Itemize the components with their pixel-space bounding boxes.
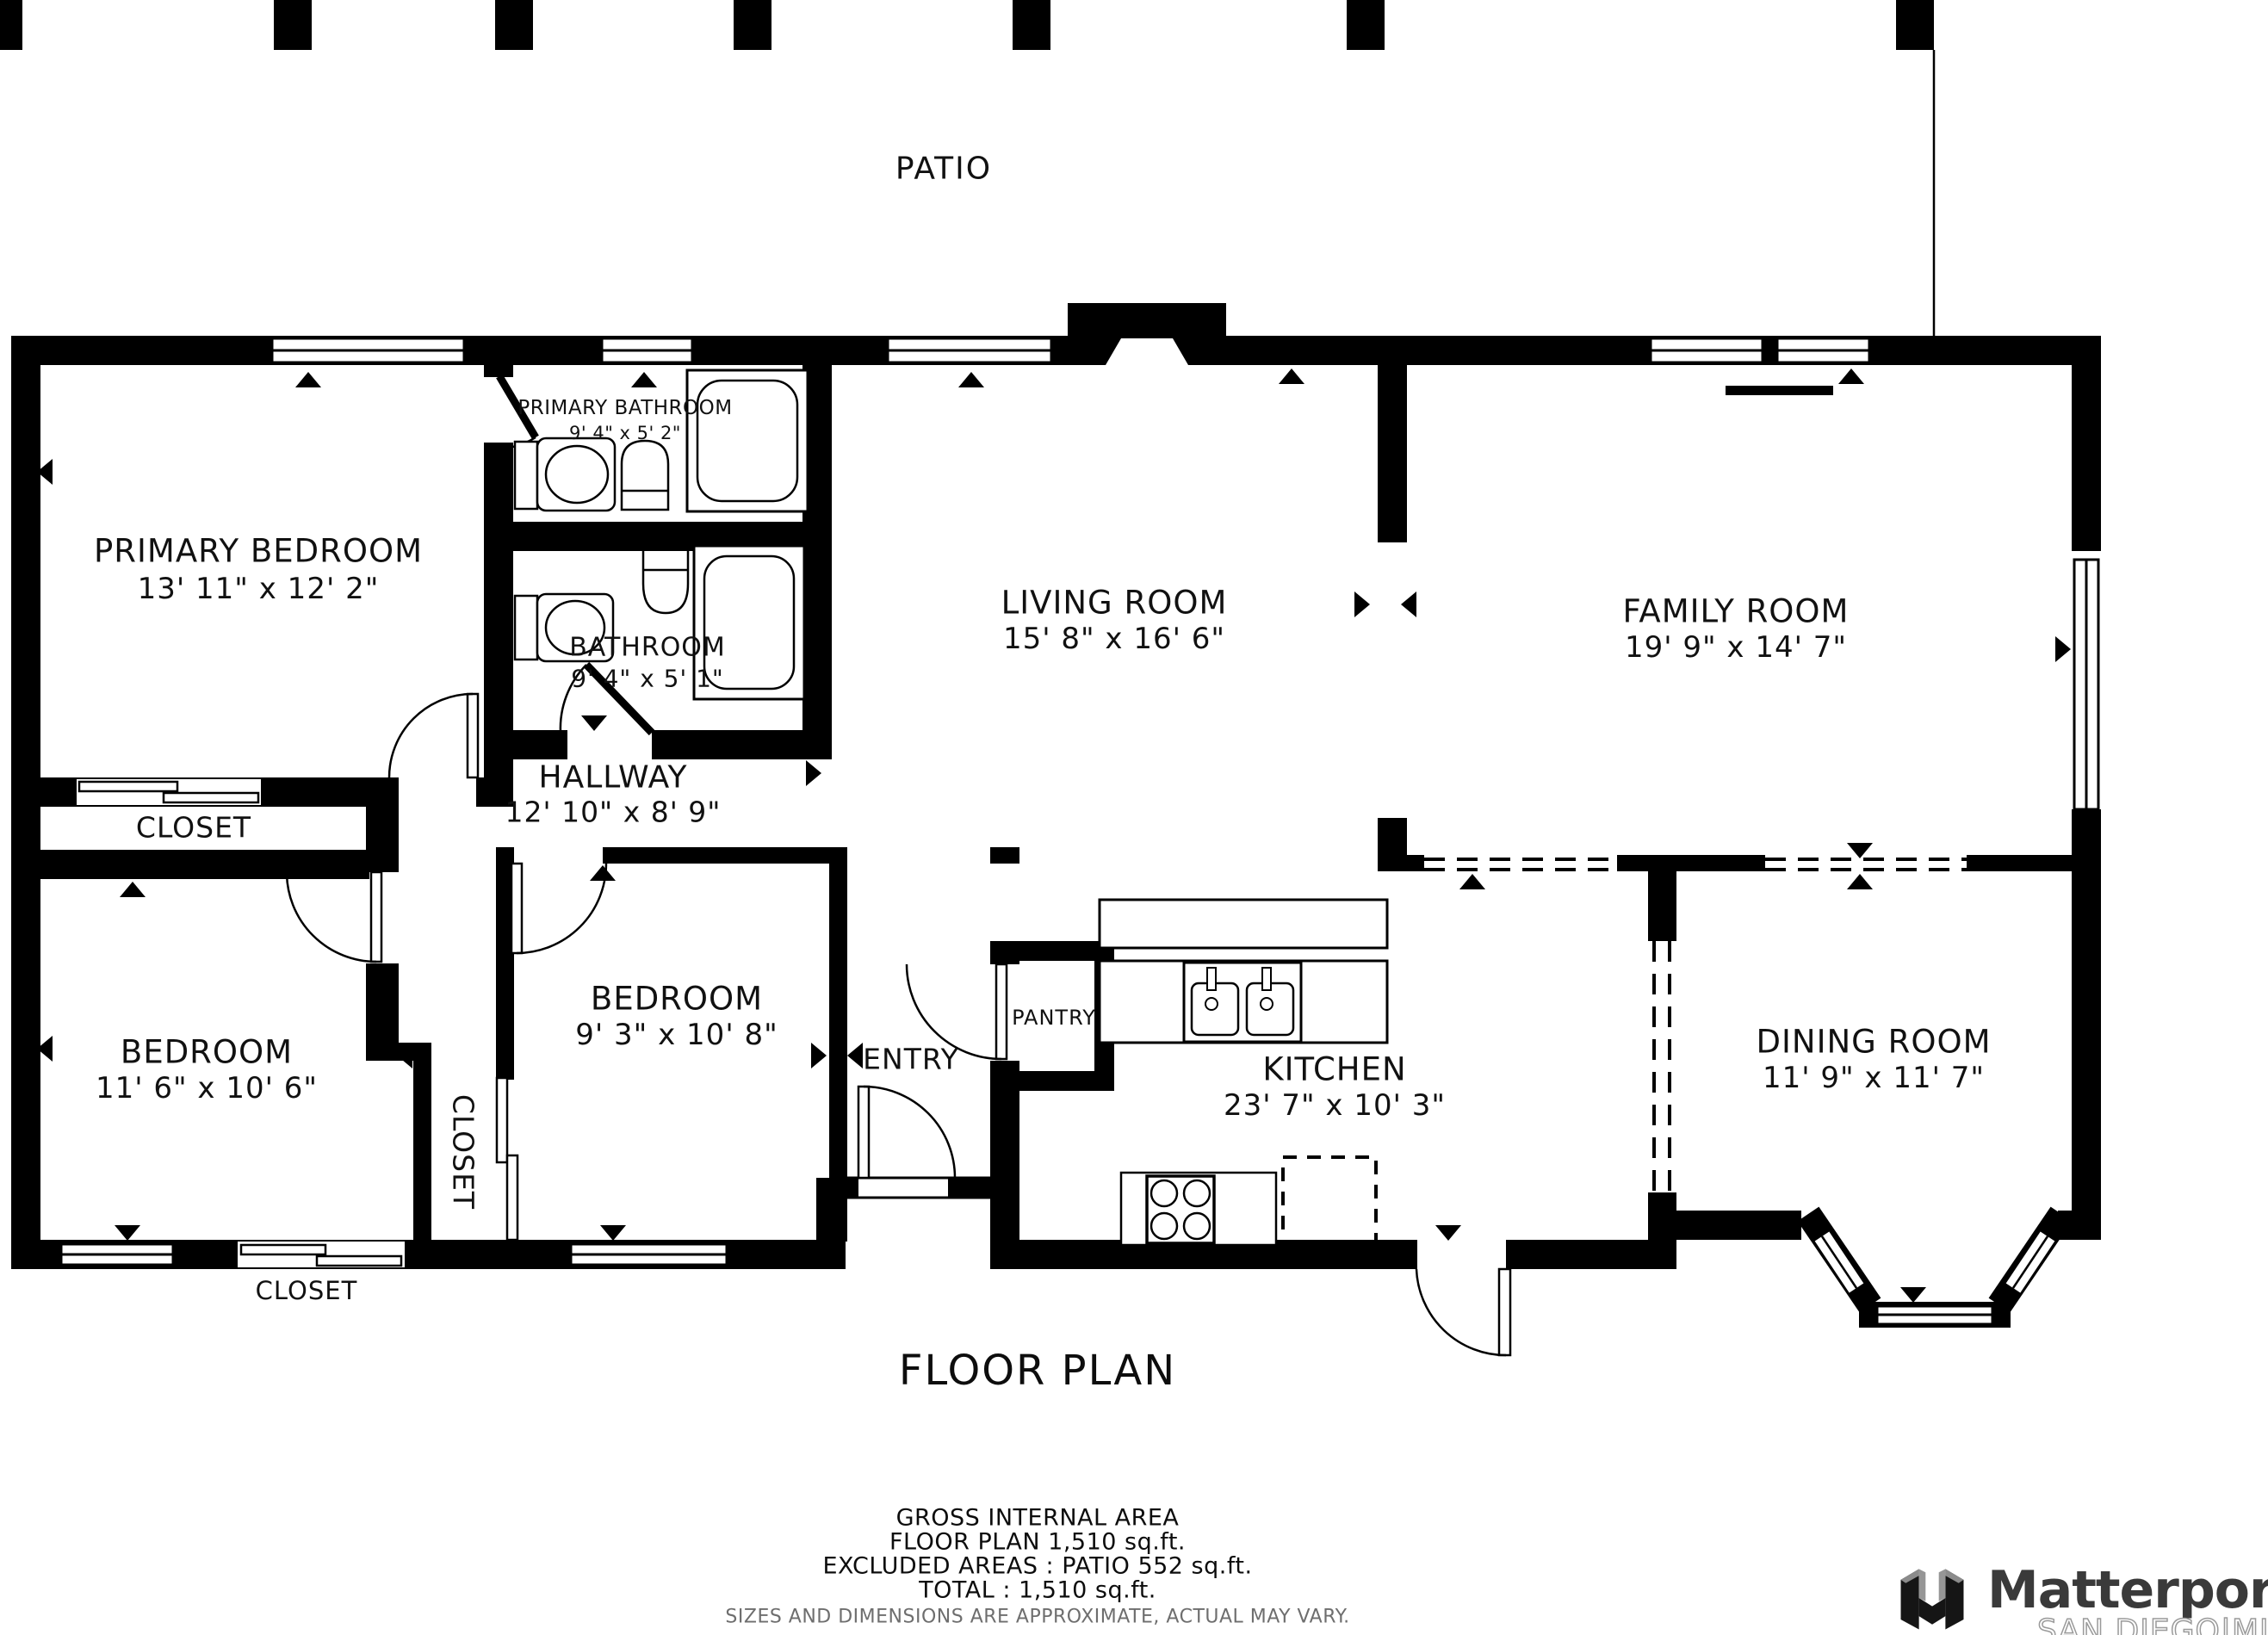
kitchen-sink-icon bbox=[1184, 963, 1301, 1042]
stove-icon bbox=[1121, 1173, 1276, 1245]
gross-internal-area: GROSS INTERNAL AREA bbox=[896, 1505, 1180, 1532]
window bbox=[571, 1244, 727, 1265]
window bbox=[1877, 1306, 1992, 1324]
disclaimer: SIZES AND DIMENSIONS ARE APPROXIMATE, AC… bbox=[725, 1607, 1349, 1628]
window bbox=[1777, 338, 1869, 362]
patio-posts bbox=[0, 0, 1934, 50]
dining-room-dims: 11' 9" x 11' 7" bbox=[1763, 1061, 1985, 1095]
sliding-door-track bbox=[1726, 386, 1833, 395]
family-room-label: FAMILY ROOM bbox=[1623, 593, 1850, 630]
dining-room-label: DINING ROOM bbox=[1757, 1024, 1992, 1061]
toilet-icon bbox=[515, 438, 615, 511]
bathtub-icon bbox=[687, 370, 808, 511]
pantry-label: PANTRY bbox=[1012, 1006, 1096, 1030]
closet-side-label: CLOSET bbox=[447, 1094, 480, 1210]
bedroom-left-label: BEDROOM bbox=[121, 1034, 293, 1071]
window bbox=[1651, 338, 1763, 362]
door-primary-bedroom bbox=[389, 694, 478, 777]
primary-bathroom-label: PRIMARY BATHROOM bbox=[517, 397, 732, 419]
floor-plan-page: PATIO PRIMARY BEDROOM 13' 11" x 12' 2" P… bbox=[0, 0, 2268, 1635]
door-bedroom-middle bbox=[511, 864, 606, 953]
closet-primary-label: CLOSET bbox=[136, 811, 251, 845]
sink-icon bbox=[622, 441, 668, 510]
floor-plan-area: FLOOR PLAN 1,510 sq.ft. bbox=[889, 1529, 1186, 1556]
total-area: TOTAL : 1,510 sq.ft. bbox=[919, 1577, 1156, 1604]
bay-window bbox=[1808, 1214, 2061, 1328]
sliding-door bbox=[77, 779, 261, 805]
sliding-door bbox=[497, 1078, 517, 1240]
excluded-areas: EXCLUDED AREAS : PATIO 552 sq.ft. bbox=[822, 1553, 1252, 1580]
window bbox=[61, 1244, 173, 1265]
sink-icon bbox=[643, 551, 688, 613]
bedroom-left-dims: 11' 6" x 10' 6" bbox=[96, 1071, 318, 1105]
matterport-mls-sub: SAN DIEGO|MLS bbox=[2037, 1613, 2268, 1635]
entry-threshold bbox=[846, 1178, 996, 1198]
window bbox=[2074, 560, 2098, 809]
living-room-dims: 15' 8" x 16' 6" bbox=[1003, 622, 1225, 656]
door-kitchen-back bbox=[1416, 1269, 1510, 1355]
kitchen-dims: 23' 7" x 10' 3" bbox=[1224, 1088, 1446, 1123]
hallway-label: HALLWAY bbox=[539, 760, 688, 796]
living-room-label: LIVING ROOM bbox=[1001, 585, 1228, 622]
hallway-dims: 12' 10" x 8' 9" bbox=[505, 796, 722, 829]
closet-bottom-label: CLOSET bbox=[256, 1276, 358, 1305]
direction-markers bbox=[37, 368, 2071, 1303]
family-room-dims: 19' 9" x 14' 7" bbox=[1625, 630, 1847, 665]
floor-plan-title: FLOOR PLAN bbox=[899, 1347, 1176, 1395]
door-bedroom-left bbox=[287, 872, 381, 962]
dishwasher-dashed bbox=[1283, 1157, 1376, 1245]
matterport-logo-icon bbox=[1891, 1557, 1974, 1635]
primary-bathroom-dims: 9' 4" x 5' 2" bbox=[569, 423, 681, 443]
kitchen-label: KITCHEN bbox=[1262, 1051, 1406, 1088]
bathroom-label: BATHROOM bbox=[569, 633, 726, 663]
entry-label: ENTRY bbox=[863, 1043, 959, 1076]
window bbox=[888, 338, 1051, 362]
window bbox=[272, 338, 464, 362]
patio-label: PATIO bbox=[895, 152, 992, 187]
fireplace-icon bbox=[1068, 303, 1226, 365]
bedroom-middle-dims: 9' 3" x 10' 8" bbox=[575, 1018, 778, 1052]
matterport-wordmark: Matterport bbox=[1987, 1560, 2268, 1620]
interior-walls bbox=[11, 365, 2072, 1242]
window bbox=[602, 338, 692, 362]
door-entry bbox=[858, 1087, 955, 1178]
primary-bedroom-dims: 13' 11" x 12' 2" bbox=[138, 572, 380, 606]
bedroom-middle-label: BEDROOM bbox=[591, 981, 763, 1018]
primary-bedroom-label: PRIMARY BEDROOM bbox=[94, 533, 423, 570]
matterport-branding: Matterport SAN DIEGO|MLS bbox=[1891, 1557, 2268, 1635]
bathroom-dims: 9' 4" x 5' 1" bbox=[571, 665, 724, 693]
sliding-door bbox=[238, 1242, 405, 1267]
